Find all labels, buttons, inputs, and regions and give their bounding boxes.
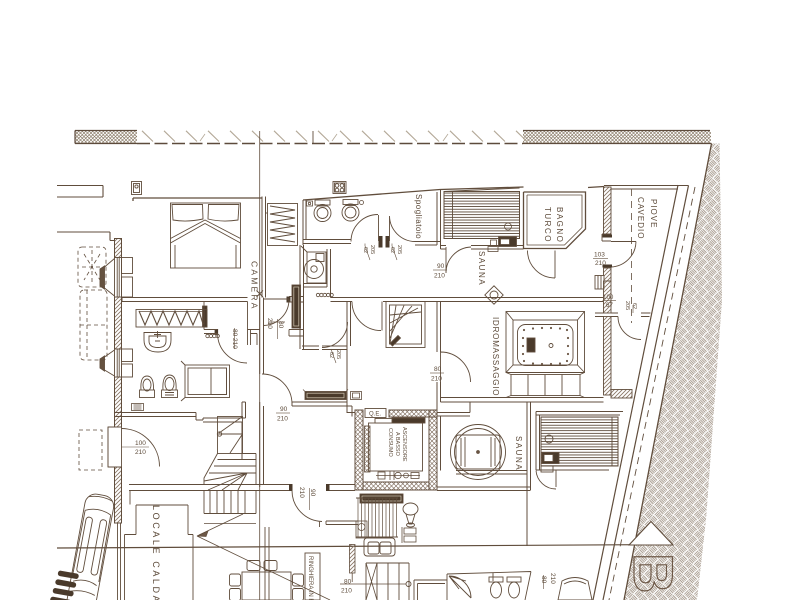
svg-text:90: 90 [280,406,288,413]
svg-text:CAMERA: CAMERA [250,261,260,311]
svg-text:TURCO: TURCO [543,207,552,243]
svg-text:90: 90 [437,263,445,270]
svg-text:80: 80 [277,321,284,329]
svg-text:67: 67 [606,302,613,309]
svg-text:Spogliatoio: Spogliatoio [414,194,423,239]
svg-text:CONSUMO: CONSUMO [387,428,393,457]
svg-text:205: 205 [624,301,630,310]
svg-text:RINGHIERA IN FE: RINGHIERA IN FE [307,556,313,600]
svg-text:103: 103 [594,252,605,259]
svg-text:LOCALE CALDAIA: LOCALE CALDAIA [151,505,161,600]
svg-text:210: 210 [135,449,146,456]
svg-text:205: 205 [396,245,402,254]
svg-text:210: 210 [277,416,288,423]
svg-text:ASCENSORE: ASCENSORE [401,427,407,462]
svg-text:205: 205 [335,350,341,359]
svg-text:210: 210 [595,260,606,267]
svg-text:90: 90 [309,489,316,497]
svg-text:210: 210 [266,318,273,329]
svg-text:SAUNA: SAUNA [477,251,486,286]
svg-text:BAGNO: BAGNO [555,207,564,243]
svg-text:62: 62 [631,303,637,309]
svg-text:IDROMASSAGGIO: IDROMASSAGGIO [491,317,500,396]
svg-text:A BASSO: A BASSO [394,432,400,457]
svg-text:80: 80 [434,366,442,373]
svg-text:CAVEDIO: CAVEDIO [636,197,645,239]
svg-text:210: 210 [434,273,445,280]
svg-text:205: 205 [369,245,375,254]
svg-text:PIOVE: PIOVE [649,199,658,228]
svg-text:100: 100 [603,294,614,301]
svg-text:210: 210 [341,588,352,595]
svg-text:100: 100 [135,440,146,447]
svg-text:210: 210 [298,487,305,498]
svg-text:B: B [622,553,685,593]
svg-text:SAUNA: SAUNA [514,436,523,471]
svg-text:Q.E.: Q.E. [369,412,381,418]
svg-text:210: 210 [549,573,556,584]
svg-text:210: 210 [431,376,442,383]
svg-text:80: 80 [344,579,352,586]
